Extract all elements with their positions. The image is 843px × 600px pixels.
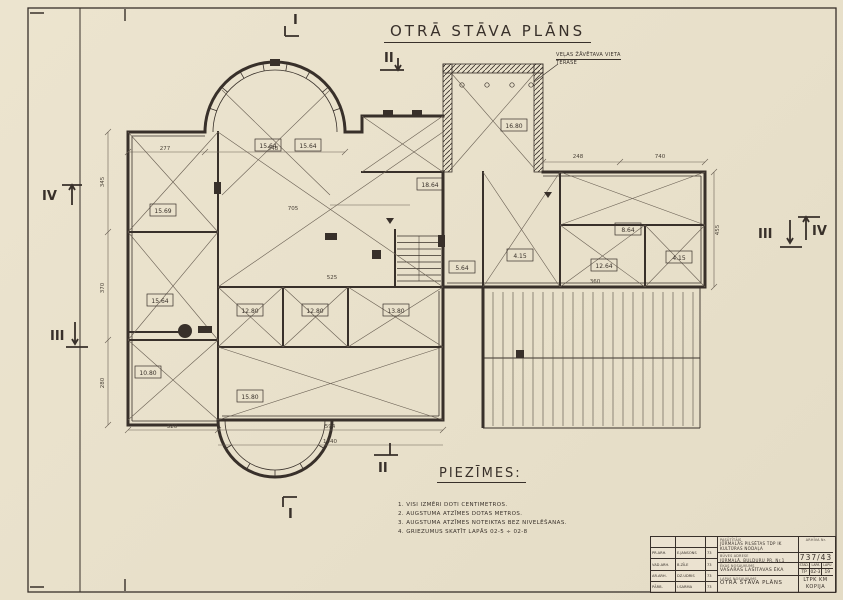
column-mark — [178, 324, 192, 338]
notes-list: 1. VISI IZMĒRI DOTI CENTIMETROS. 2. AUGS… — [398, 501, 567, 537]
signature-year: 73 — [706, 571, 716, 581]
terrace-annotation-line2: TERASE — [556, 60, 577, 66]
org-cell: LTPK KM KOPIJA — [798, 576, 833, 592]
dimension-label: 370 — [100, 282, 106, 293]
page-col: LAPA 02-3 — [810, 563, 821, 576]
address-label: BŪVES ADRESE — [720, 554, 796, 558]
archive-label: ARHĪVA Nr. — [801, 538, 831, 542]
signature-role: AR.ARH. — [651, 571, 676, 581]
building-value: VASARAS LASĪTAVAS ĒKA — [720, 568, 796, 573]
room-area-label: 16.80 — [505, 123, 522, 130]
org-name: LTPK KM KOPIJA — [799, 576, 832, 592]
terrace-hooks — [460, 83, 533, 87]
drawing-title: OTRĀ STĀVA PLĀNS — [384, 22, 591, 43]
dimension-label: 548 — [268, 146, 279, 152]
note-line-4: 4. GRIEZUMUS SKATĪT LAPĀS 02-5 ÷ 02-8 — [398, 528, 567, 537]
room-area-label: 15.69 — [154, 208, 171, 215]
title-block-sheet: LAPAS NOSAUKUMS OTRĀ STĀVA PLĀNS — [717, 576, 798, 592]
drawing-sheet: 15.64 15.64 15.69 15.64 10.80 12.80 12.8… — [0, 0, 843, 600]
stage-col: STAD. TP — [799, 563, 810, 576]
dimension-label: 360 — [590, 279, 601, 285]
room-area-label: 10.80 — [139, 370, 156, 377]
section-markers: I II IV III III IV II I — [42, 13, 827, 522]
room-area-label: 4.15 — [513, 253, 527, 260]
terrace-annotation: VEĻAS ŽĀVĒTAVA VIETA TERASE — [556, 52, 621, 67]
room-area-label: 8.64 — [621, 227, 635, 234]
building-label: ĒKAS NOSAUKUMS — [720, 564, 796, 568]
note-line-1: 1. VISI IZMĒRI DOTI CENTIMETROS. — [398, 501, 567, 510]
room-area-label: 15.80 — [241, 394, 258, 401]
section-marker-left-iii: III — [50, 329, 65, 344]
signature-name: DZ.UDRIS — [676, 571, 706, 581]
signature-role: PR.ARH. — [651, 548, 676, 558]
level-mark — [386, 218, 394, 224]
stage-value: TP — [799, 569, 809, 576]
archive-number-cell: 737/43 — [798, 553, 833, 563]
signature-row: PR.ARH. E.JANSONS 73 — [651, 548, 717, 559]
room-area-label: 13.80 — [387, 308, 404, 315]
signature-role: VAD.ARH. — [651, 559, 676, 569]
dimension-label: 740 — [655, 154, 666, 160]
dimension-label: 594 — [325, 424, 336, 430]
dimension-label: 345 — [100, 176, 106, 187]
fold-marks — [30, 9, 125, 591]
sheet-title: OTRĀ STĀVA PLĀNS — [720, 581, 796, 586]
room-diagonals — [128, 74, 705, 420]
rotunda-outer-arc — [205, 62, 345, 132]
title-block: PR.ARH. E.JANSONS 73 VAD.ARH. B.ZĪLE 73 … — [650, 536, 836, 593]
dimension-texts: 277 548 345 370 280 705 525 248 740 360 … — [100, 146, 721, 445]
terrace-annotation-line1: VEĻAS ŽĀVĒTAVA VIETA — [556, 52, 621, 60]
dimension-label: 320 — [167, 424, 178, 430]
level-mark — [544, 192, 552, 198]
signature-row: AR.ARH. DZ.UDRIS 73 — [651, 571, 717, 582]
signature-name: B.ZĪLE — [676, 559, 706, 569]
dimension-label: 455 — [715, 224, 721, 235]
client-value: JŪRMALAS PILSĒTAS TDP IK KULTŪRAS NODAĻA — [720, 542, 796, 551]
room-area-label: 18.64 — [421, 182, 438, 189]
signature-name: E.JANSONS — [676, 548, 706, 558]
exterior-walls — [128, 62, 705, 477]
note-line-2: 2. AUGSTUMA ATZĪMES DOTAS METROS. — [398, 510, 567, 519]
signature-year: 73 — [706, 548, 716, 558]
pages-value: 19 — [822, 569, 833, 576]
bay-outer-arc — [218, 420, 332, 477]
room-area-label: 12.80 — [241, 308, 258, 315]
title-block-signatures: PR.ARH. E.JANSONS 73 VAD.ARH. B.ZĪLE 73 … — [651, 537, 717, 592]
section-marker-top-ii: II — [384, 51, 394, 66]
section-marker-bottom-i: I — [288, 507, 293, 522]
room-area-label: 12.64 — [595, 263, 612, 270]
signature-year: 73 — [706, 559, 716, 569]
section-marker-right-iii: III — [758, 227, 773, 242]
dimension-label: 280 — [100, 377, 106, 388]
title-block-client: PASŪTĪTĀJS JŪRMALAS PILSĒTAS TDP IK KULT… — [717, 537, 798, 553]
signature-name: I.SARMA — [676, 582, 706, 592]
opening-marks — [178, 59, 552, 338]
dimension-label: 277 — [160, 146, 171, 152]
archive-number: 737/43 — [799, 553, 833, 562]
room-area-label: 4.15 — [672, 255, 686, 262]
dimension-label: 248 — [573, 154, 584, 160]
title-block-address: BŪVES ADRESE JŪRMALĀ, BULDURU PR. Nr.1 — [717, 553, 798, 563]
signature-role: PĀRB. — [651, 582, 676, 592]
pages-col: LAPU 19 — [822, 563, 833, 576]
title-block-building: ĒKAS NOSAUKUMS VASARAS LASĪTAVAS ĒKA — [717, 563, 798, 576]
bay-window-ticks — [226, 445, 325, 477]
stair-steps — [397, 236, 441, 281]
archive-label-cell: ARHĪVA Nr. — [798, 537, 833, 553]
notes-heading: PIEZĪMES: — [437, 466, 526, 483]
dimension-label: 705 — [288, 206, 299, 212]
sheet-label: LAPAS NOSAUKUMS — [720, 577, 796, 581]
signature-row-empty — [651, 537, 717, 548]
exterior-stair-terrace — [483, 287, 700, 428]
section-marker-top-i: I — [293, 13, 298, 28]
signature-row: PĀRB. I.SARMA 73 — [651, 582, 717, 592]
signature-row: VAD.ARH. B.ZĪLE 73 — [651, 559, 717, 570]
stage-page-cell: STAD. TP LAPA 02-3 LAPU 19 — [798, 563, 833, 576]
page-number: 02-3 — [810, 569, 820, 576]
section-marker-right-iv: IV — [812, 224, 827, 239]
section-marker-bottom-ii: II — [378, 461, 388, 476]
interior-partitions — [128, 132, 705, 420]
client-label: PASŪTĪTĀJS — [720, 538, 796, 542]
room-area-label: 15.64 — [151, 298, 168, 305]
section-marker-left-iv: IV — [42, 189, 57, 204]
signature-year: 73 — [706, 582, 716, 592]
room-area-label: 12.80 — [306, 308, 323, 315]
room-area-label: 15.64 — [299, 143, 316, 150]
terrace-annex-walls — [443, 64, 543, 172]
dimension-label: 525 — [327, 275, 338, 281]
dimension-label: 1040 — [323, 439, 337, 445]
note-line-3: 3. AUGSTUMA ATZĪMES NOTEIKTAS BEZ NIVELĒ… — [398, 519, 567, 528]
room-area-label: 5.64 — [455, 265, 469, 272]
